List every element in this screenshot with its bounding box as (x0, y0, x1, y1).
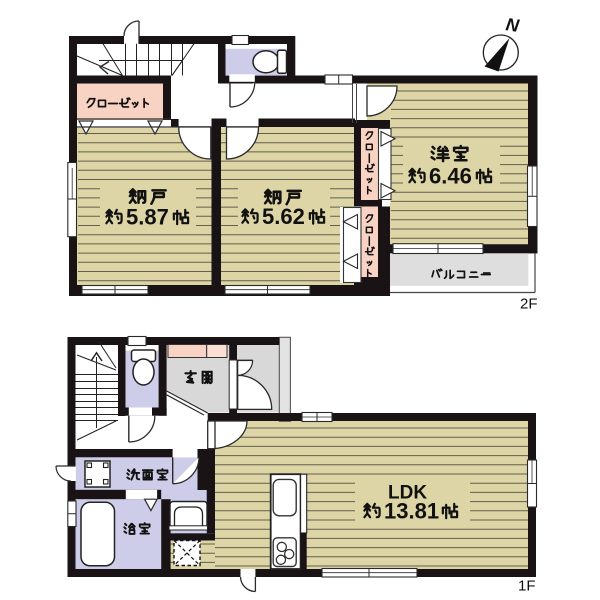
svg-text:5.62: 5.62 (262, 204, 305, 229)
svg-text:2F: 2F (520, 296, 538, 313)
svg-text:6.46: 6.46 (429, 164, 472, 189)
svg-text:1F: 1F (518, 578, 536, 595)
svg-text:5.87: 5.87 (126, 205, 169, 230)
svg-text:13.81: 13.81 (384, 499, 439, 524)
svg-text:N: N (505, 14, 522, 36)
